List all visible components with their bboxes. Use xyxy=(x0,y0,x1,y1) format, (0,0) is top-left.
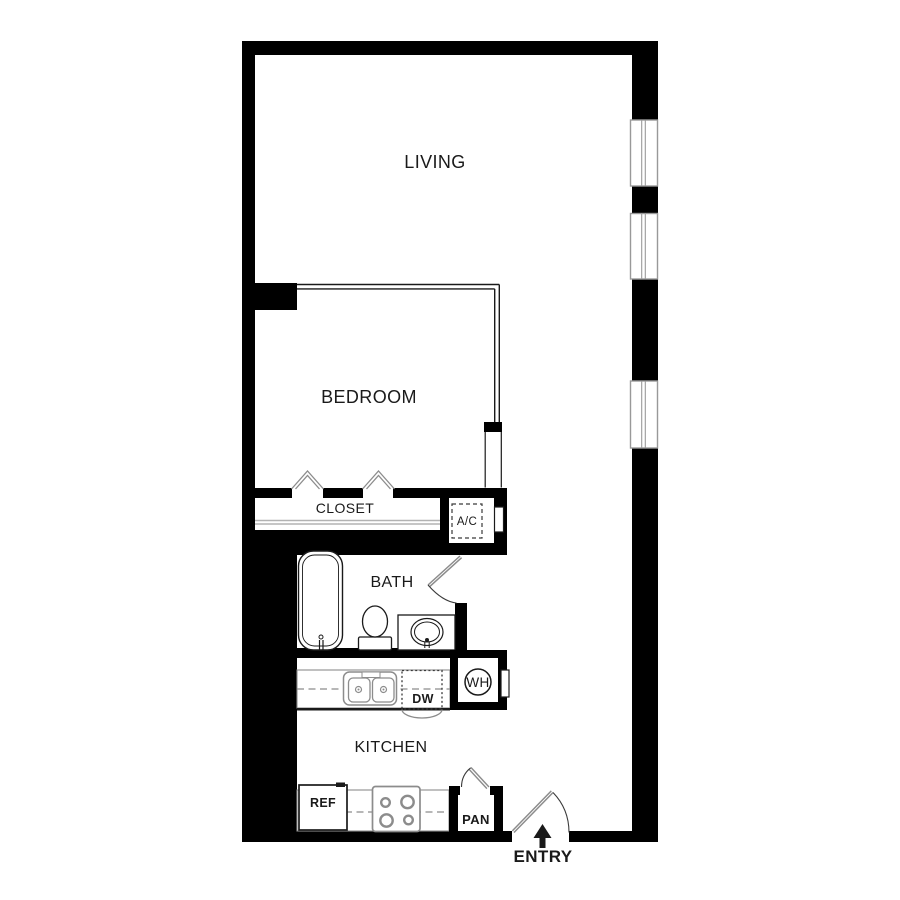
wall-top xyxy=(242,41,658,55)
dishwasher-arc xyxy=(402,710,442,719)
burner-bottom-right xyxy=(404,816,413,825)
bifold-door-2 xyxy=(363,471,395,489)
bedroom-wall-top-lines xyxy=(297,285,499,289)
bath-door-swing-arc xyxy=(428,585,457,603)
ac-label: A/C xyxy=(457,516,477,528)
burner-top-right xyxy=(401,796,413,808)
tub-faucet xyxy=(319,635,323,639)
wall-bedroom-left-stub xyxy=(242,283,297,310)
burner-bottom-left xyxy=(380,814,392,826)
toilet-tank xyxy=(359,637,392,650)
living-room-label: LIVING xyxy=(404,152,465,172)
burner-top-left xyxy=(381,798,390,807)
stove xyxy=(373,787,421,832)
wall-bedroom-bottom-seg3 xyxy=(393,488,507,498)
pan-label: PAN xyxy=(462,812,490,827)
wall-right-seg2 xyxy=(632,186,658,214)
entry-arrow-icon xyxy=(534,824,552,848)
closet-rod xyxy=(255,521,440,525)
kitchen-label: KITCHEN xyxy=(354,739,427,756)
bedroom-partition xyxy=(297,285,501,488)
bathroom xyxy=(299,551,462,650)
wall-right-seg3 xyxy=(632,279,658,381)
interior-walls xyxy=(242,283,507,842)
bifold-door-1 xyxy=(292,471,324,489)
ref-label: REF xyxy=(310,796,336,810)
toilet-bowl xyxy=(363,606,388,637)
sink-drain-left-dot xyxy=(358,689,360,691)
wall-closet-bottom xyxy=(255,530,440,543)
wall-bedroom-bottom-seg2 xyxy=(323,488,363,498)
wall-right-seg1 xyxy=(632,41,658,120)
wall-bath-right-below-door xyxy=(455,603,467,650)
wh-label: WH xyxy=(466,675,489,690)
entry-label: ENTRY xyxy=(514,847,573,866)
pantry-closet xyxy=(449,768,503,841)
floorplan-canvas: LIVING BEDROOM CLOSET BATH KITCHEN A/C W… xyxy=(0,0,900,900)
bedroom-wall-right-lines xyxy=(495,285,500,423)
bedroom-door-opening-jambs xyxy=(485,432,501,488)
sink-drain-right-dot xyxy=(383,689,385,691)
ac-louver-vent xyxy=(495,507,504,532)
wh-louver-vent xyxy=(501,670,509,697)
pantry-door-leaf xyxy=(469,768,489,789)
bathtub-inner xyxy=(303,555,339,646)
closet-label: CLOSET xyxy=(316,500,374,516)
window-3 xyxy=(631,381,658,448)
wall-bedroom-door-stub xyxy=(484,422,502,432)
bath-label: BATH xyxy=(370,574,413,591)
vanity-faucet-dot xyxy=(425,638,429,642)
kitchen-sink-faucet-deck xyxy=(362,672,380,678)
window-1 xyxy=(631,120,658,186)
wall-bedroom-bottom-seg1 xyxy=(255,488,292,498)
dw-label: DW xyxy=(412,692,433,706)
entry-door-leaf xyxy=(512,791,553,833)
window-2 xyxy=(631,214,658,280)
floorplan-page: LIVING BEDROOM CLOSET BATH KITCHEN A/C W… xyxy=(0,0,900,900)
entry-door xyxy=(512,791,569,848)
wall-right-seg4 xyxy=(632,448,658,842)
entry-door-swing-arc xyxy=(553,793,569,833)
wall-bottom-right xyxy=(569,831,658,842)
bath-door-leaf xyxy=(428,556,462,587)
refrigerator-hinge xyxy=(336,783,345,788)
wall-left-thick-column xyxy=(242,540,297,842)
pantry-door-swing-arc xyxy=(462,768,471,787)
bedroom-label: BEDROOM xyxy=(321,387,417,407)
